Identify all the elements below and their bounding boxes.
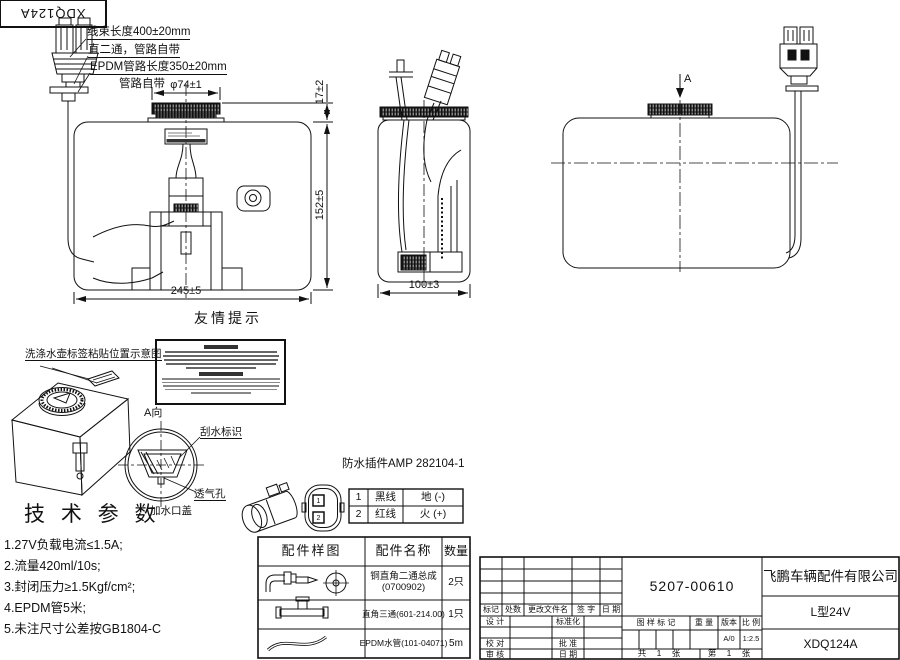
callout-straight-fitting: 直二通，管路自带: [88, 44, 180, 58]
warning-label: [155, 339, 286, 405]
corner-part-code: XDQ124A: [20, 6, 86, 21]
tb-weight-label: 重 量: [690, 616, 718, 630]
pin-2-number: 2: [349, 506, 368, 523]
warning-label-text-line: [163, 355, 279, 357]
vent-hole-label: 透气孔: [194, 488, 226, 501]
tb-rev-filename: 更改文件名: [524, 604, 572, 616]
tech-params-title: 技 术 参 数: [24, 503, 161, 527]
tb-date-label: 日 期: [552, 649, 584, 660]
tb-version-value: A/0: [718, 630, 740, 649]
dim-cap-diameter: φ74±1: [160, 79, 212, 92]
parts-row-3-name: EPDM水管(101-04071): [365, 629, 442, 658]
parts-header-sample: 配件样图: [258, 537, 365, 566]
connector-title: 防水插件AMP 282104-1: [342, 458, 465, 471]
warning-label-text-line: [186, 367, 256, 369]
side-view: [378, 50, 470, 298]
warning-label-text-line: [165, 351, 277, 353]
pin-1-polarity: 地 (-): [403, 489, 463, 506]
tb-model: L型24V: [762, 596, 899, 629]
pin-2-polarity: 火 (+): [403, 506, 463, 523]
tb-company-name: 飞鹏车辆配件有限公司: [762, 557, 899, 596]
callout-epdm-length: EPDM管路长度350±20mm: [90, 61, 227, 75]
warning-label-heading-line: [204, 345, 238, 349]
warning-label-text-line: [164, 359, 278, 361]
tb-scale-value: 1:2.5: [740, 630, 762, 649]
tb-sheets-total: 共 1 张: [622, 649, 700, 659]
tb-design-label: 设 计: [480, 616, 510, 627]
tb-approve-label: 批 准: [552, 638, 584, 649]
warning-label-subheading-line: [199, 372, 243, 376]
tb-part-number: XDQ124A: [762, 629, 899, 660]
parts-row-1-name-line2: (0700902): [382, 583, 425, 594]
isometric-tank-drawing: [12, 366, 130, 495]
reminder-title: 友情提示: [194, 310, 262, 326]
corner-code-box: XDQ124A: [0, 0, 107, 28]
tech-param-4: 4.EPDM管5米;: [4, 601, 86, 615]
warning-label-text-line: [165, 389, 277, 391]
callout-pipe-included: 管路自带: [119, 78, 165, 91]
tech-param-3: 3.封闭压力≥1.5Kgf/cm²;: [4, 580, 135, 594]
view-a-title: A向: [144, 407, 162, 420]
parts-row-2-qty: 1只: [442, 600, 470, 629]
parts-header-name: 配件名称: [365, 537, 442, 566]
label-position-note: 洗涤水壶标签粘贴位置示意图: [25, 348, 162, 361]
dim-tank-height: 152±5: [314, 190, 326, 221]
tech-param-5: 5.未注尺寸公差按GB1804-C: [4, 622, 161, 636]
warning-label-text-line: [162, 382, 280, 384]
warning-label-text-line: [162, 378, 280, 380]
warning-label-text-line: [166, 363, 276, 365]
tb-rev-count: 处数: [502, 604, 524, 616]
parts-row-3-qty: 5m: [442, 629, 470, 658]
tb-sheet-number: 第 1 张: [700, 649, 762, 659]
tech-param-2: 2.流量420ml/10s;: [4, 559, 101, 573]
tech-param-1: 1.27V负载电流≤1.5A;: [4, 538, 123, 552]
wiper-mark-label: 刮水标识: [200, 426, 242, 439]
parts-header-qty: 数量: [442, 537, 470, 566]
view-a-drawing: [118, 421, 204, 509]
parts-row-2-name: 直角三通(601-214.00): [365, 600, 442, 629]
parts-row-1-name: 铜直角二通总成 (0700902): [365, 566, 442, 600]
dim-tank-width: 245±5: [160, 285, 212, 298]
pin-1-wire: 黑线: [368, 489, 403, 506]
warning-label-text-line: [163, 385, 279, 387]
view-a-arrow-label: A: [684, 73, 691, 86]
tb-stamp-label: 图 样 标 记: [622, 616, 690, 630]
tb-version-label: 版本: [718, 616, 740, 630]
engineering-drawing-sheet: 1 2 XDQ124A 线束长度400±20mm 直二通，管路自带 EPDM管路…: [0, 0, 900, 660]
dim-tank-depth: 100±3: [398, 279, 450, 292]
tb-standardization-label: 标准化: [552, 616, 584, 627]
front-view: [74, 84, 333, 304]
tb-rev-signature: 签 字: [572, 604, 600, 616]
tb-audit-label: 审 核: [480, 649, 510, 660]
tb-drawing-number: 5207-00610: [622, 557, 762, 616]
tb-check-label: 校 对: [480, 638, 510, 649]
connector-face-pin-1: 1: [317, 498, 321, 505]
rear-view: [551, 27, 838, 272]
warning-label-text-line: [191, 392, 251, 394]
amp-connector-drawing: [235, 480, 344, 535]
dim-cap-height: 17±2: [314, 80, 326, 104]
parts-row-1-qty: 2只: [442, 566, 470, 600]
tb-rev-date: 日 期: [600, 604, 622, 616]
tb-scale-label: 比 例: [740, 616, 762, 630]
pin-2-wire: 红线: [368, 506, 403, 523]
pin-1-number: 1: [349, 489, 368, 506]
connector-face-pin-2: 2: [317, 515, 321, 522]
callout-harness-length: 线束长度400±20mm: [87, 26, 190, 40]
tb-rev-mark: 标记: [480, 604, 502, 616]
